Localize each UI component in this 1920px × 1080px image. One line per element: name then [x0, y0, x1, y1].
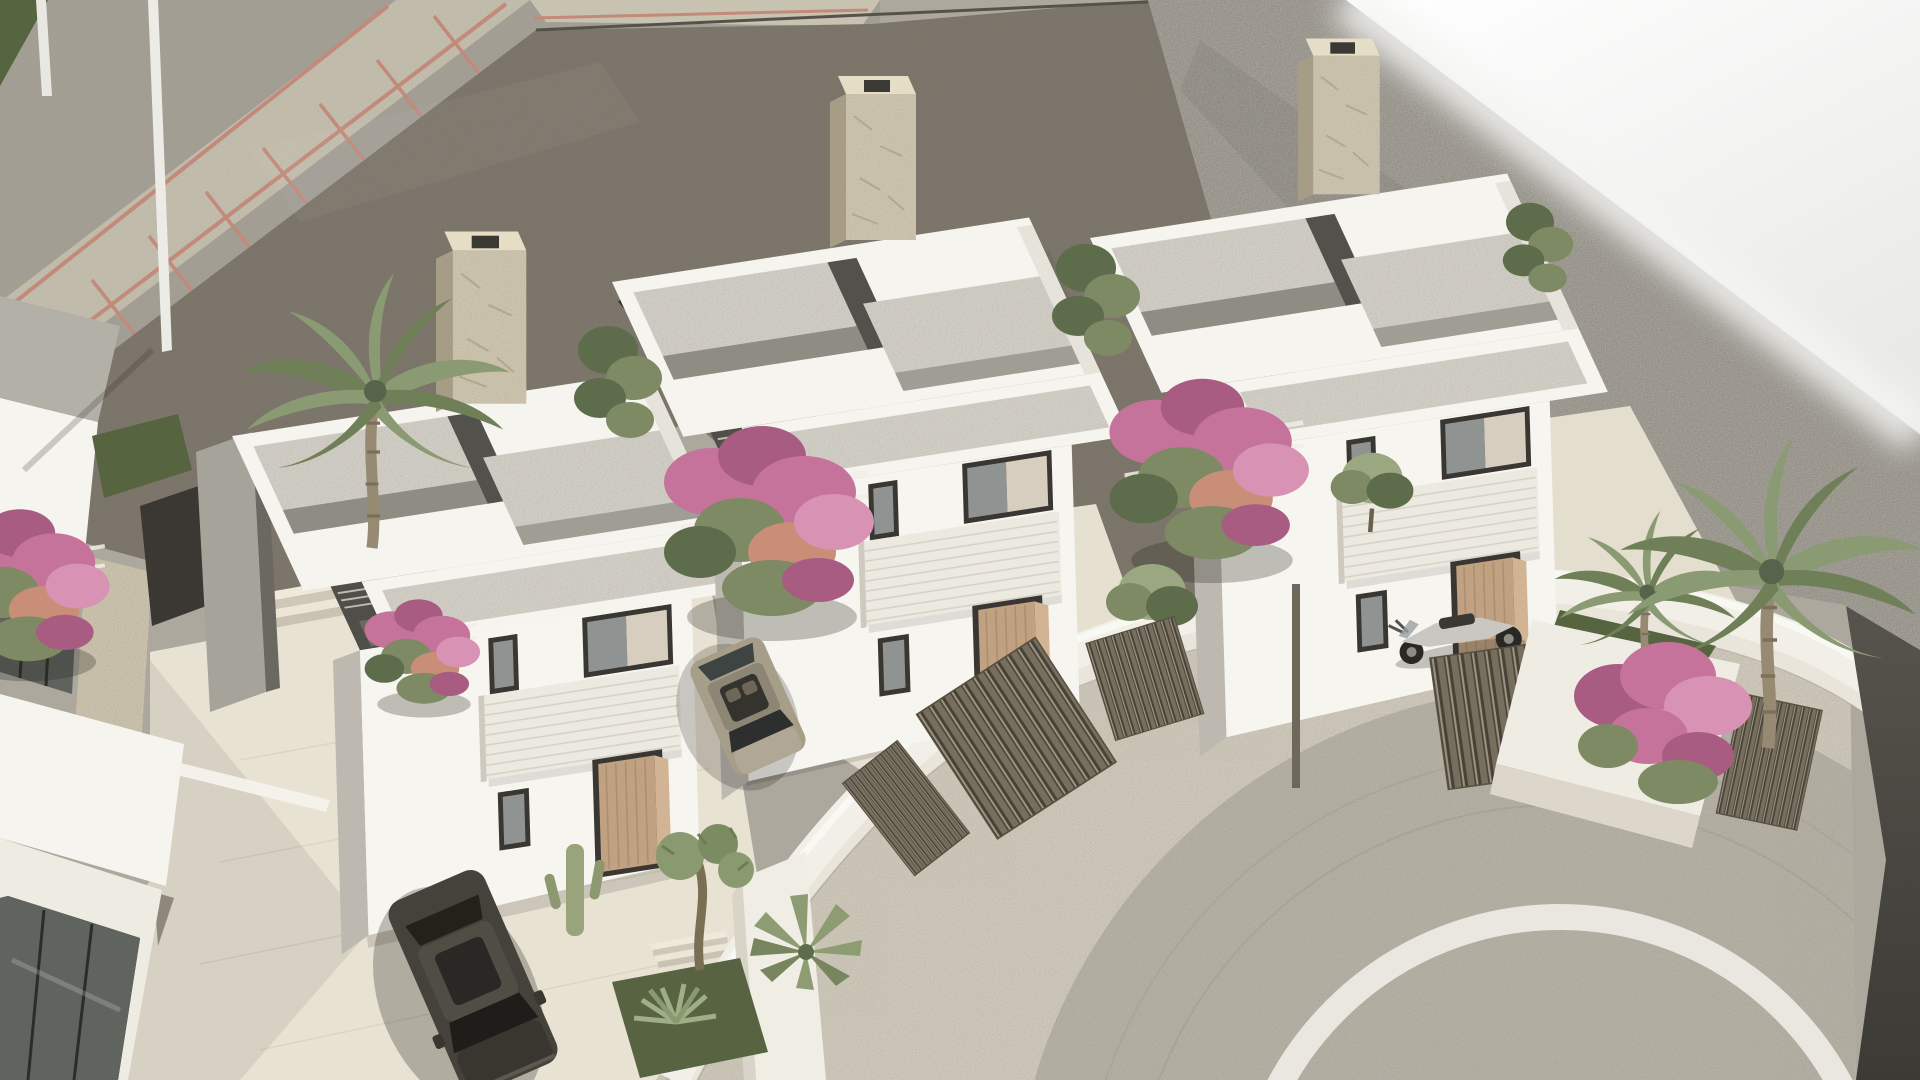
chimney-villa1 [436, 232, 526, 413]
chimney-villa2 [830, 76, 916, 248]
chimney-villa3 [1298, 39, 1380, 202]
fence-post [1292, 584, 1300, 788]
architectural-render: Aerial 3D architectural rendering of a r… [0, 0, 1920, 1080]
render-canvas [0, 0, 1920, 1080]
